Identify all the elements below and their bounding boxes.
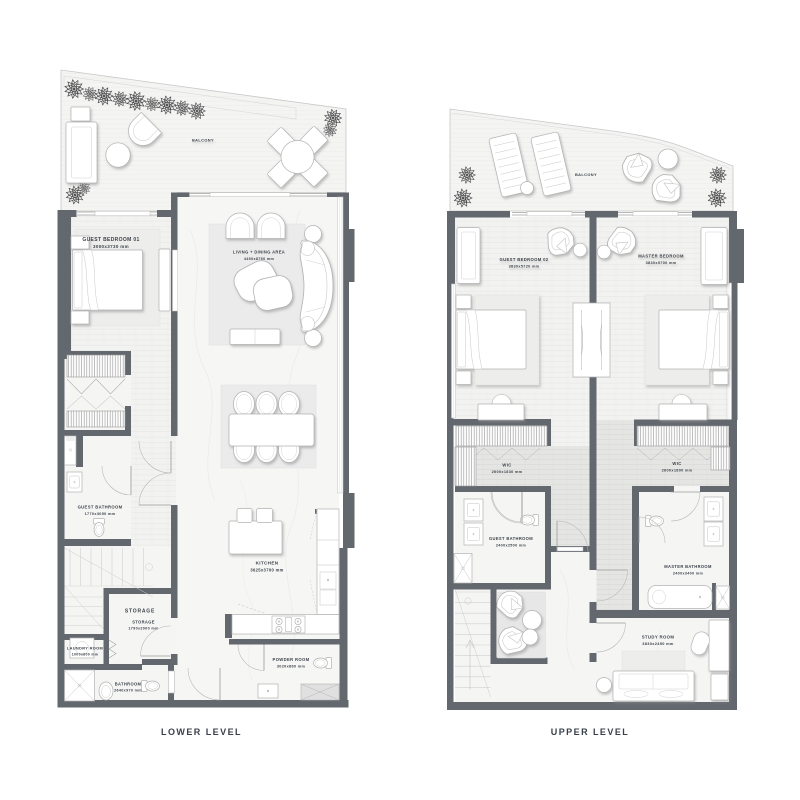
svg-text:STORAGE: STORAGE bbox=[132, 620, 155, 625]
svg-text:3830x2450 mm: 3830x2450 mm bbox=[642, 641, 674, 646]
svg-text:2640x970 mm: 2640x970 mm bbox=[114, 689, 142, 693]
svg-text:3000x3730 mm: 3000x3730 mm bbox=[93, 244, 129, 249]
svg-text:3830x5700 mm: 3830x5700 mm bbox=[646, 261, 677, 265]
svg-text:KITCHEN: KITCHEN bbox=[256, 561, 279, 566]
svg-text:LIVING + DINING AREA: LIVING + DINING AREA bbox=[233, 250, 285, 255]
svg-text:1000x800 mm: 1000x800 mm bbox=[72, 652, 99, 656]
svg-text:WIC: WIC bbox=[502, 463, 511, 468]
svg-text:GUEST BEDROOM 02: GUEST BEDROOM 02 bbox=[500, 257, 549, 262]
svg-text:1770x3050 mm: 1770x3050 mm bbox=[85, 512, 116, 516]
svg-text:STUDY ROOM: STUDY ROOM bbox=[642, 635, 675, 640]
svg-text:2600x1830 mm: 2600x1830 mm bbox=[492, 470, 523, 474]
svg-text:BATHROOM: BATHROOM bbox=[115, 682, 142, 687]
svg-text:2400x2500 mm: 2400x2500 mm bbox=[496, 543, 527, 547]
svg-text:POWDER ROOM: POWDER ROOM bbox=[273, 657, 310, 662]
svg-text:1790x2000 mm: 1790x2000 mm bbox=[128, 627, 159, 631]
svg-text:GUEST BATHROOM: GUEST BATHROOM bbox=[78, 505, 123, 510]
svg-text:3020x860 mm: 3020x860 mm bbox=[277, 664, 306, 668]
svg-text:LOWER LEVEL: LOWER LEVEL bbox=[161, 727, 242, 737]
svg-text:STORAGE: STORAGE bbox=[125, 609, 155, 615]
svg-text:3830x5720 mm: 3830x5720 mm bbox=[509, 265, 540, 269]
svg-text:3625x3700 mm: 3625x3700 mm bbox=[250, 567, 283, 572]
svg-text:2600x1800 mm: 2600x1800 mm bbox=[662, 468, 693, 472]
svg-text:BALCONY: BALCONY bbox=[192, 138, 214, 143]
svg-text:MASTER BEDROOM: MASTER BEDROOM bbox=[638, 254, 684, 259]
svg-text:GUEST BEDROOM 01: GUEST BEDROOM 01 bbox=[82, 237, 139, 243]
svg-text:2400x3400 mm: 2400x3400 mm bbox=[673, 571, 704, 575]
svg-text:WIC: WIC bbox=[672, 461, 681, 466]
svg-text:GUEST BATHROOM: GUEST BATHROOM bbox=[489, 536, 533, 541]
svg-text:4450x8750 mm: 4450x8750 mm bbox=[244, 257, 275, 261]
svg-text:UPPER LEVEL: UPPER LEVEL bbox=[551, 727, 629, 737]
svg-text:LAUNDRY ROOM: LAUNDRY ROOM bbox=[67, 646, 103, 651]
svg-text:BALCONY: BALCONY bbox=[575, 172, 597, 177]
